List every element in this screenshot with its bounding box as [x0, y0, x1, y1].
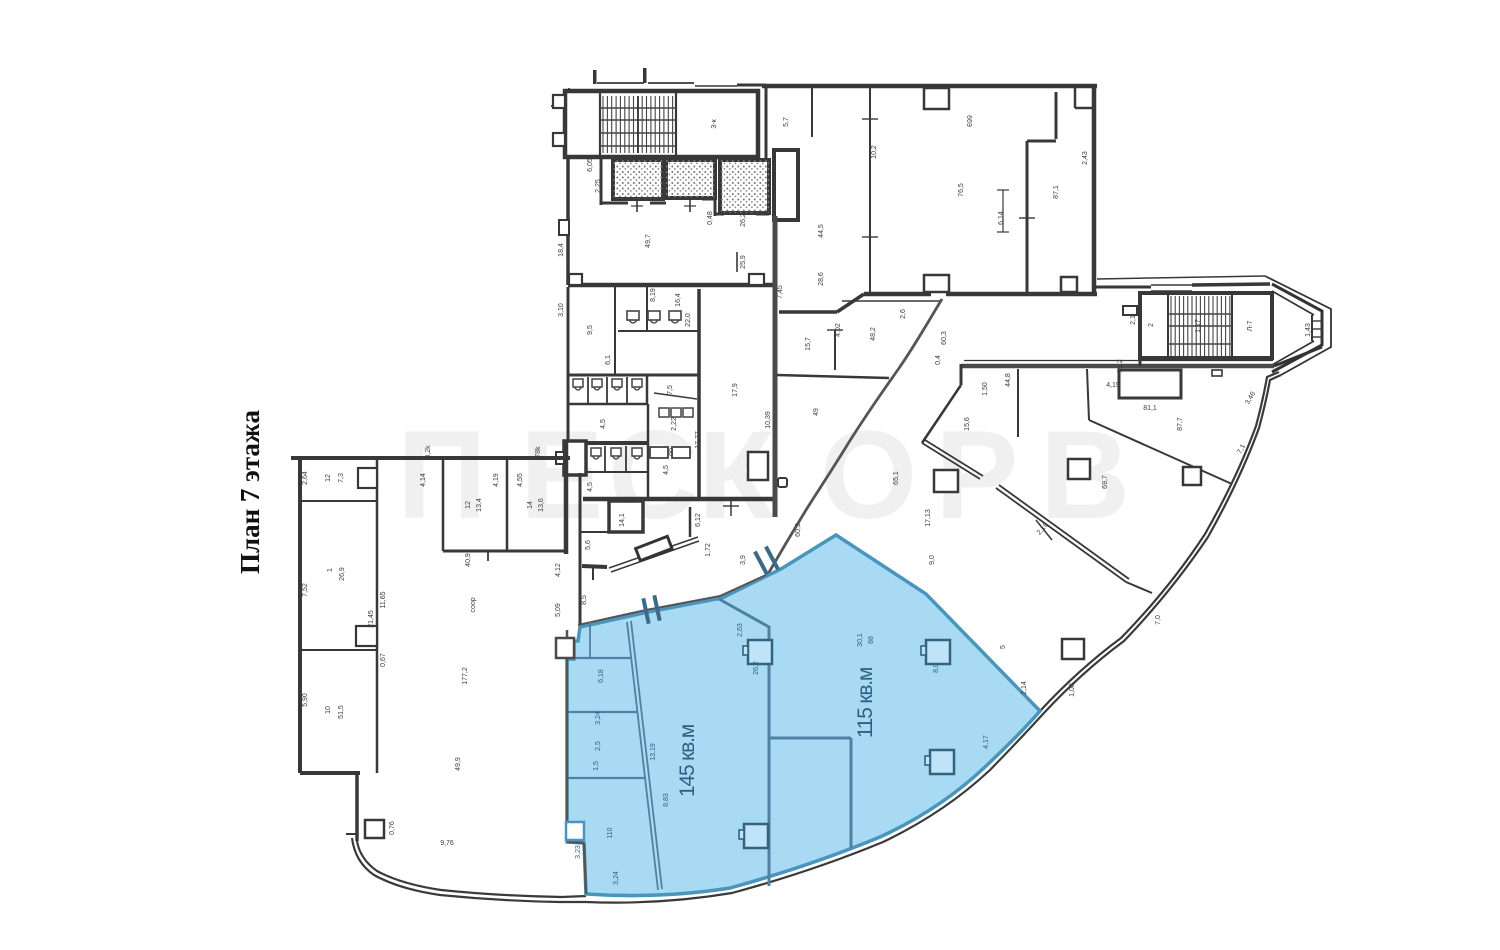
svg-text:об: об [667, 448, 675, 456]
svg-text:19,2: 19,2 [1117, 359, 1124, 373]
svg-text:14,1: 14,1 [619, 513, 626, 527]
svg-text:3,24: 3,24 [595, 711, 602, 725]
svg-text:28,6: 28,6 [818, 272, 825, 286]
svg-text:9,5: 9,5 [587, 325, 594, 335]
svg-text:10,2: 10,2 [871, 145, 878, 159]
svg-text:81,1: 81,1 [1143, 405, 1157, 412]
svg-text:2,1: 2,1 [1130, 315, 1137, 325]
svg-text:4,02: 4,02 [835, 323, 842, 337]
svg-text:87,7: 87,7 [1177, 417, 1184, 431]
svg-text:4,55: 4,55 [517, 473, 524, 487]
svg-text:План 7 этажа: План 7 этажа [235, 409, 265, 574]
svg-text:30,1: 30,1 [857, 633, 864, 647]
svg-text:соор: соор [470, 597, 477, 612]
svg-text:60,3: 60,3 [941, 331, 948, 345]
svg-text:22,0: 22,0 [685, 313, 692, 327]
svg-text:49: 49 [813, 408, 820, 416]
svg-text:0,48: 0,48 [707, 211, 714, 225]
svg-text:12: 12 [465, 501, 472, 509]
svg-text:3,10: 3,10 [558, 303, 565, 317]
svg-text:16,4: 16,4 [675, 293, 682, 307]
svg-text:7,0: 7,0 [1155, 615, 1162, 625]
svg-text:40,9: 40,9 [465, 553, 472, 567]
svg-text:9,0: 9,0 [929, 555, 936, 565]
svg-text:49,7: 49,7 [645, 234, 652, 248]
svg-text:13,19: 13,19 [650, 743, 657, 761]
svg-text:1: 1 [327, 568, 334, 572]
svg-text:26,9: 26,9 [339, 567, 346, 581]
svg-text:669: 669 [965, 115, 972, 127]
svg-text:8,2k: 8,2k [425, 445, 432, 459]
svg-text:7,3: 7,3 [338, 473, 345, 483]
svg-text:11,65: 11,65 [380, 591, 387, 608]
svg-text:44,8: 44,8 [1005, 373, 1012, 387]
svg-text:3,9: 3,9 [740, 555, 747, 565]
svg-text:110: 110 [607, 827, 614, 838]
svg-text:44,5: 44,5 [818, 224, 825, 238]
svg-text:65,1: 65,1 [893, 471, 900, 485]
svg-text:6,05: 6,05 [587, 158, 594, 172]
svg-text:2,43: 2,43 [1082, 151, 1089, 165]
svg-text:4,19: 4,19 [493, 473, 500, 487]
svg-text:0,67: 0,67 [380, 653, 387, 667]
svg-text:25,9: 25,9 [740, 255, 747, 269]
svg-text:4,5: 4,5 [600, 419, 607, 429]
svg-text:Е: Е [520, 406, 603, 545]
svg-text:4,19: 4,19 [1106, 382, 1120, 389]
svg-text:5,09: 5,09 [555, 603, 562, 617]
svg-text:26,2: 26,2 [753, 661, 760, 675]
svg-text:9,76: 9,76 [440, 840, 454, 847]
svg-text:4,5: 4,5 [587, 482, 594, 492]
svg-text:115 кв.м: 115 кв.м [854, 668, 877, 738]
svg-text:4,12: 4,12 [555, 563, 562, 577]
svg-text:2,5: 2,5 [595, 741, 602, 751]
svg-text:3,23: 3,23 [575, 845, 582, 859]
svg-text:2,14: 2,14 [1021, 681, 1028, 695]
svg-text:6,18: 6,18 [598, 669, 605, 683]
svg-text:7,45: 7,45 [777, 285, 784, 299]
svg-text:1,08: 1,08 [1069, 683, 1076, 697]
svg-text:26,2: 26,2 [740, 213, 747, 227]
svg-text:1,43: 1,43 [1305, 323, 1312, 337]
svg-text:8,0: 8,0 [933, 663, 940, 673]
svg-text:17,9: 17,9 [732, 383, 739, 397]
svg-text:15,7: 15,7 [805, 337, 812, 351]
svg-text:17,77: 17,77 [695, 431, 702, 449]
svg-text:88: 88 [868, 636, 875, 644]
svg-text:4,5: 4,5 [663, 465, 670, 475]
svg-text:69,7: 69,7 [1102, 475, 1109, 489]
svg-text:8,19: 8,19 [650, 288, 657, 302]
svg-text:15,6: 15,6 [964, 417, 971, 431]
svg-text:8,83: 8,83 [663, 793, 670, 807]
svg-text:145 кв.м: 145 кв.м [676, 725, 699, 797]
svg-text:51,5: 51,5 [338, 705, 345, 719]
svg-text:1,50: 1,50 [982, 382, 989, 396]
svg-text:0,76: 0,76 [389, 821, 396, 835]
svg-text:5: 5 [1000, 645, 1007, 649]
svg-text:0,4: 0,4 [935, 355, 942, 365]
svg-text:1,72: 1,72 [705, 543, 712, 557]
svg-text:48,2: 48,2 [870, 327, 877, 341]
svg-text:8,5: 8,5 [581, 595, 588, 605]
svg-text:60,3: 60,3 [795, 523, 802, 537]
svg-text:13,4: 13,4 [476, 498, 483, 512]
svg-text:177,2: 177,2 [462, 667, 469, 685]
svg-text:14: 14 [527, 501, 534, 509]
svg-text:О: О [820, 406, 917, 545]
svg-text:2,22: 2,22 [671, 417, 678, 431]
svg-text:12: 12 [325, 474, 332, 482]
svg-text:4,17: 4,17 [983, 735, 990, 749]
svg-text:1,17: 1,17 [1195, 319, 1202, 333]
svg-text:7,52: 7,52 [302, 583, 309, 597]
svg-text:17,13: 17,13 [925, 509, 932, 527]
svg-text:6,12: 6,12 [695, 513, 702, 527]
svg-text:6,1: 6,1 [605, 355, 612, 365]
svg-text:2: 2 [1148, 323, 1155, 327]
svg-text:18,4: 18,4 [558, 243, 565, 257]
svg-text:49,9: 49,9 [455, 757, 462, 771]
svg-text:10: 10 [325, 706, 332, 714]
svg-text:2,64: 2,64 [302, 471, 309, 485]
svg-text:76,5: 76,5 [958, 183, 965, 197]
svg-text:5,7: 5,7 [783, 117, 790, 127]
svg-text:21,45: 21,45 [368, 610, 375, 628]
svg-text:2,6: 2,6 [900, 309, 907, 319]
svg-text:2,63: 2,63 [737, 623, 744, 637]
svg-text:5,6: 5,6 [585, 540, 592, 550]
svg-text:13,6: 13,6 [538, 498, 545, 512]
svg-text:Л-7: Л-7 [1247, 320, 1254, 331]
svg-text:2,25: 2,25 [595, 179, 602, 193]
svg-text:7,5: 7,5 [667, 385, 674, 395]
svg-text:87,1: 87,1 [1053, 185, 1060, 199]
svg-text:1,5: 1,5 [593, 761, 600, 771]
svg-text:6,14: 6,14 [998, 211, 1005, 225]
svg-text:3,24: 3,24 [613, 871, 620, 885]
svg-text:10,39: 10,39 [765, 411, 772, 429]
svg-text:4,14: 4,14 [420, 473, 427, 487]
svg-text:3-к: 3-к [711, 118, 718, 128]
svg-text:5,90: 5,90 [302, 693, 309, 707]
svg-text:78k: 78k [535, 446, 542, 458]
